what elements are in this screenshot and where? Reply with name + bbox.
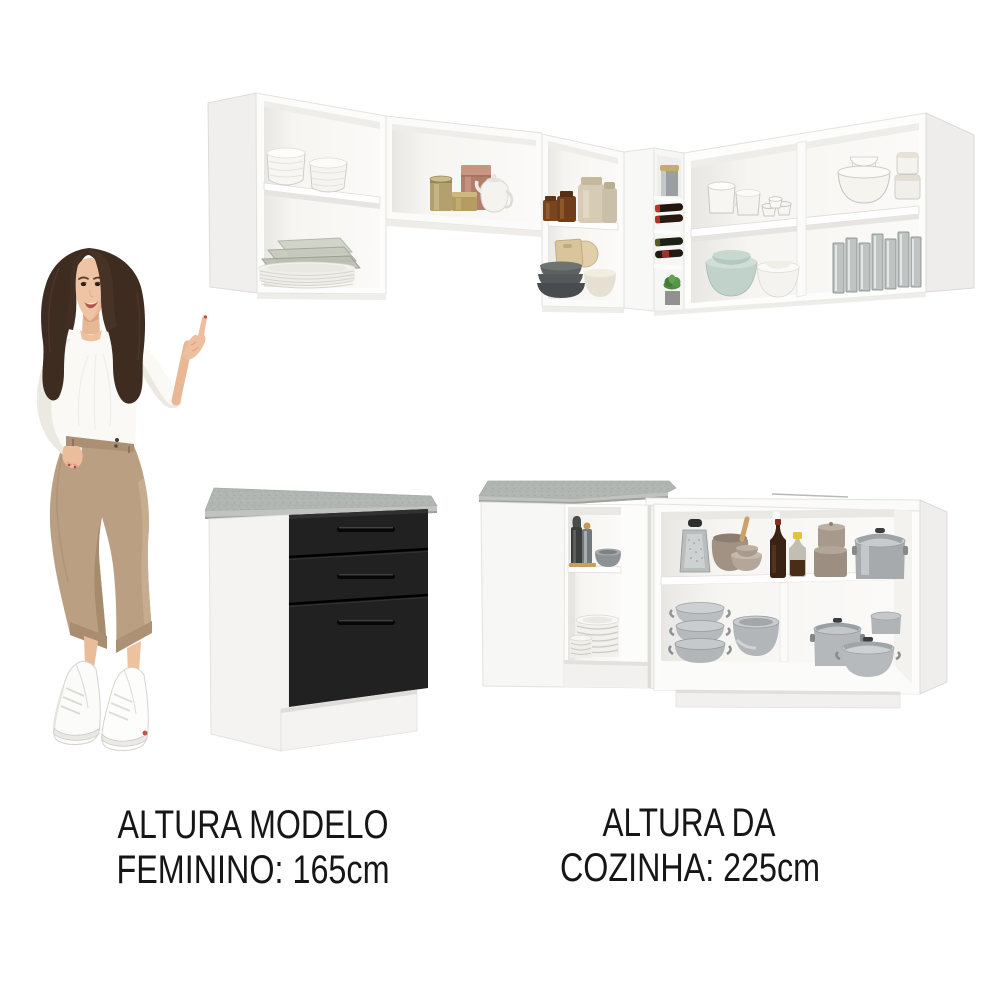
svg-text:ALTURA DA: ALTURA DA: [603, 801, 776, 845]
svg-text:FEMININO: 165cm: FEMININO: 165cm: [117, 848, 390, 892]
svg-text:ALTURA MODELO: ALTURA MODELO: [118, 803, 389, 847]
svg-text:COZINHA: 225cm: COZINHA: 225cm: [560, 846, 820, 890]
